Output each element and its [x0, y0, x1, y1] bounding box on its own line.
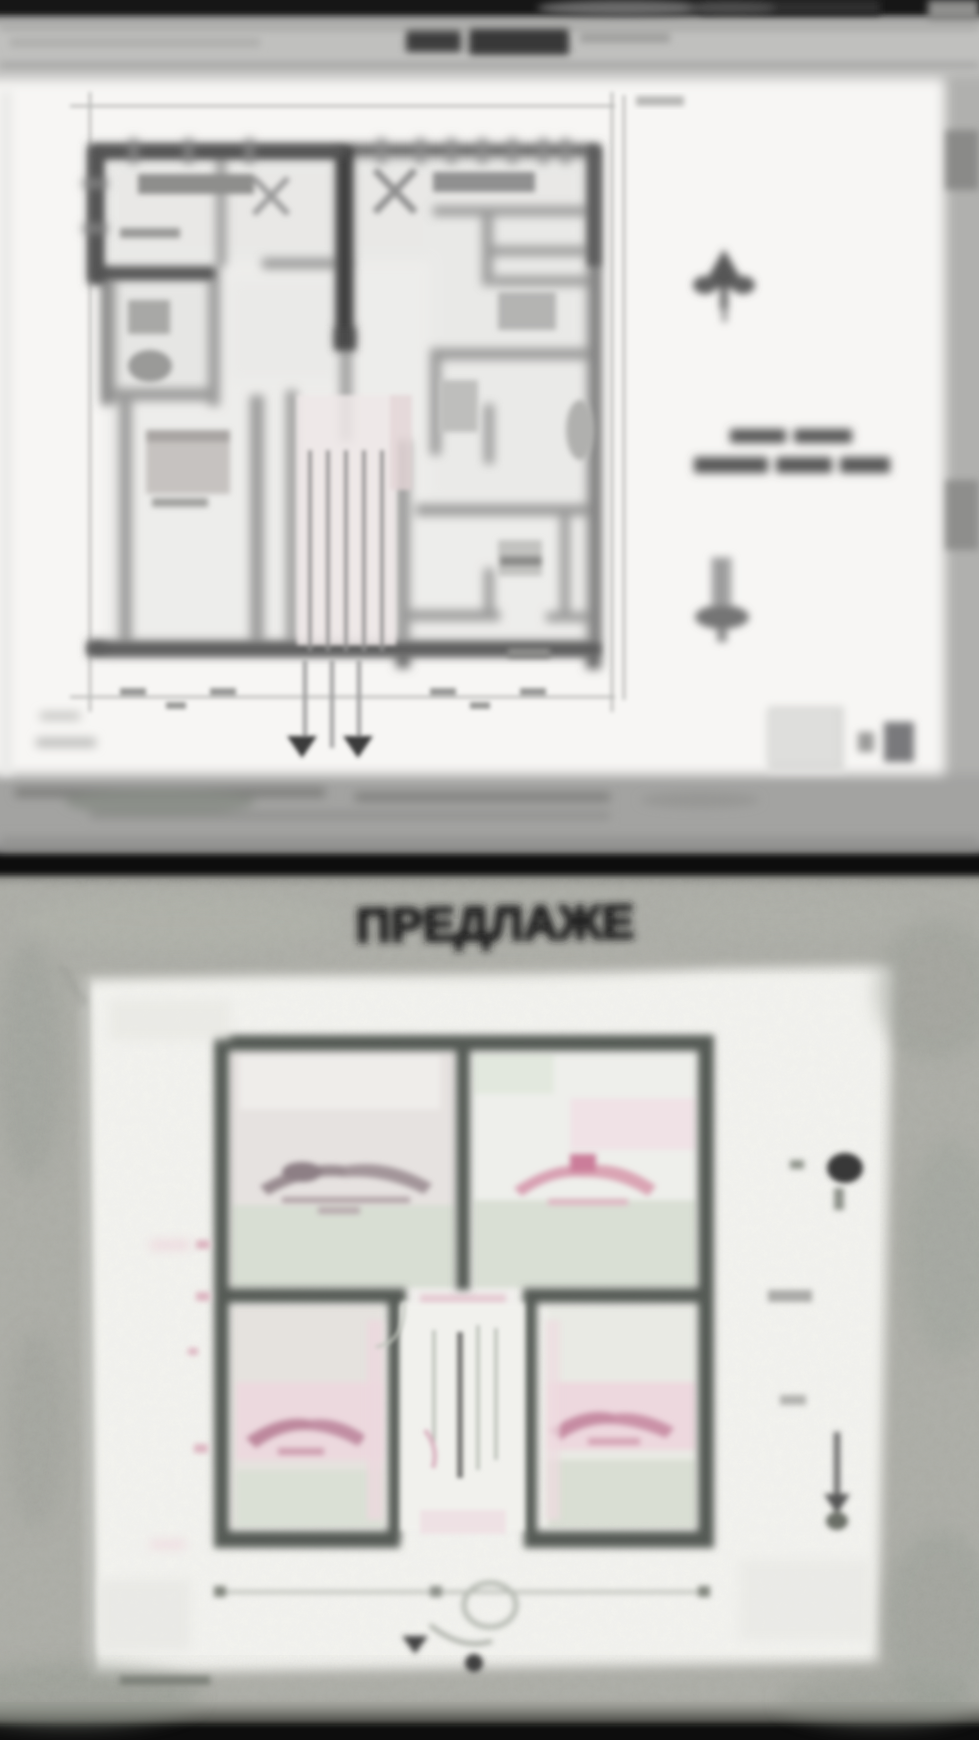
svg-text:ПРЕДЛАЖЕ: ПРЕДЛАЖЕ	[356, 896, 635, 953]
